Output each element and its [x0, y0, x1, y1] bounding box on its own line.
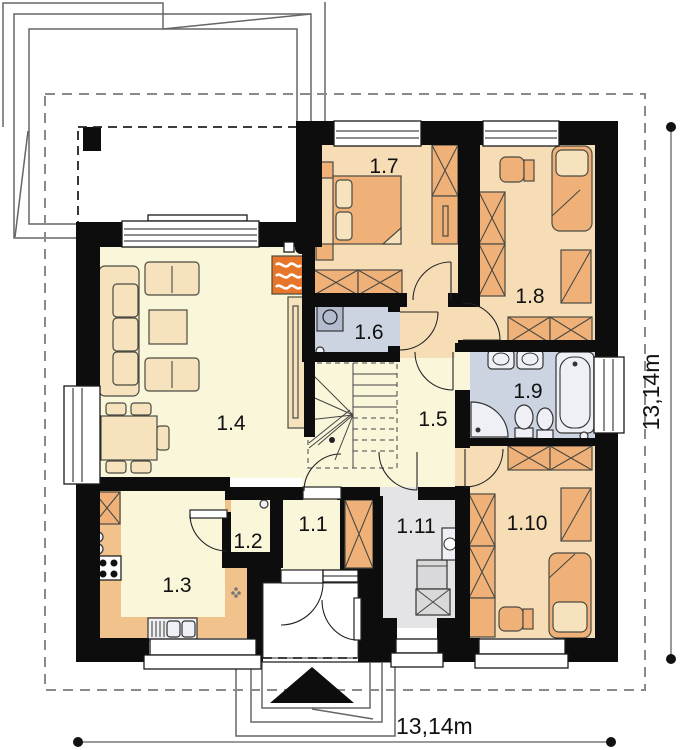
wall-bottom4 [564, 638, 618, 662]
roof-hip-line [163, 14, 311, 29]
wall-boiler-east2 [388, 346, 400, 362]
wall-pantry-north [225, 487, 303, 500]
room-label-1-5: 1.5 [418, 408, 447, 431]
desk [524, 160, 534, 181]
window-laundry [396, 639, 438, 653]
window-kitchen [150, 639, 256, 655]
window-bedroom3 [479, 639, 565, 654]
wall-pantry-south [222, 552, 283, 568]
cabinet [469, 598, 495, 637]
wall-living-hall [302, 243, 315, 362]
room-label-1-9: 1.9 [513, 380, 542, 403]
sofa-cushion [113, 318, 138, 351]
dining-chair [106, 403, 126, 415]
wall-laundry-bed3 [455, 486, 470, 638]
coffee-table [149, 310, 187, 344]
pillow [336, 180, 352, 208]
dimension-label-right: 13,14m [638, 354, 664, 431]
pillow [553, 602, 587, 632]
fireplace-vent [284, 242, 294, 252]
room-label-1-11: 1.11 [396, 515, 435, 538]
floor-plan-drawing: 13,14m 13,14m 1.1 1.2 1.3 1.4 1.5 1.6 1.… [0, 0, 681, 750]
wall-left-lower [76, 484, 100, 662]
bathtub-drain [573, 362, 578, 367]
vestibule-floor [263, 583, 358, 658]
door-leaf-entrance-hall [303, 487, 341, 499]
wall-laundry-south2 [437, 618, 470, 640]
pantry-fixture-circle [260, 500, 268, 508]
dining-chair [131, 461, 151, 473]
wall-bath-bed3 [458, 438, 595, 446]
floor-plan-page: 13,14m 13,14m 1.1 1.2 1.3 1.4 1.5 1.6 1.… [0, 0, 681, 750]
dimension-marker [666, 122, 676, 132]
stove-burner [111, 560, 118, 567]
roof-edge-outer [3, 3, 163, 127]
sink-basin [182, 621, 195, 637]
stair-start-dot [329, 437, 335, 443]
door-leaf-entry [354, 598, 361, 640]
porch-diagonal [312, 709, 373, 719]
bidet-back [537, 430, 553, 439]
pillow [556, 150, 588, 176]
wall-bed1-bed2 [458, 145, 480, 307]
window-bedroom3-sill [475, 654, 568, 668]
wall-bed2-bath [458, 340, 595, 352]
floor-hall-door-gap2 [379, 487, 420, 500]
chimney [83, 127, 101, 151]
stove-burner [100, 571, 107, 578]
wall-vestibule-north [263, 568, 281, 583]
roof-edge-mid [14, 14, 311, 238]
roof-edge-inner [29, 29, 297, 224]
dining-chair [106, 461, 126, 473]
room-label-1-4: 1.4 [216, 412, 246, 435]
wall-wing-top3 [558, 121, 618, 145]
wall-right-lower [595, 433, 618, 662]
wall-left-upper [76, 222, 100, 386]
dining-chair [131, 403, 151, 415]
wall-boiler-south [306, 352, 400, 362]
room-label-1-8: 1.8 [515, 285, 544, 308]
stove-burner [111, 571, 118, 578]
wall-bottom1 [76, 638, 149, 662]
stove-burner [100, 560, 107, 567]
wall-bed1-south-stub [448, 293, 458, 307]
sofa-cushion [113, 284, 138, 317]
shower-head [476, 428, 481, 433]
boiler [317, 304, 343, 331]
wall-living-top-left [100, 222, 123, 247]
sofa-cushion [113, 352, 138, 385]
sink-basin [167, 621, 180, 637]
roof-diagonal-left [15, 131, 28, 237]
dining-table [101, 416, 157, 460]
room-label-1-7: 1.7 [369, 155, 398, 178]
wall-hall-south2 [418, 487, 458, 500]
floor-bed3-door-gap [455, 446, 470, 490]
room-label-1-2: 1.2 [233, 530, 262, 553]
window-laundry-sill [391, 653, 443, 667]
wall-boiler-east1 [388, 295, 400, 312]
door-leaf-vestibule [281, 570, 323, 583]
entrance-arrow [270, 667, 354, 703]
laundry-heater-dial [444, 538, 456, 550]
terrace-glass-door [122, 221, 259, 247]
desk-chair [499, 607, 523, 631]
dining-chair [157, 426, 169, 450]
dimension-marker [73, 737, 83, 747]
wall-laundry-west [373, 496, 383, 628]
washing-machine [417, 560, 447, 589]
desk [523, 609, 533, 629]
wall-laundry-south1 [373, 618, 397, 640]
floor-bath-door-gap [455, 352, 470, 390]
room-label-1-10: 1.10 [507, 512, 548, 535]
toilet-bowl [515, 405, 533, 429]
window-bedroom1 [334, 121, 421, 146]
dimension-marker [666, 654, 676, 664]
wall-stairs-west [304, 362, 315, 437]
dimension-label-bottom: 13,14m [396, 713, 473, 739]
wall-corner-column [296, 121, 322, 247]
room-label-1-6: 1.6 [354, 321, 383, 344]
pillow [336, 212, 352, 240]
kitchen-counter-nook [225, 568, 247, 638]
room-label-1-3: 1.3 [162, 574, 191, 597]
desk-chair [500, 157, 524, 182]
terrace-step-line [148, 215, 247, 221]
bidet-bowl [537, 408, 553, 430]
window-bedroom2 [483, 121, 559, 146]
room-label-1-1: 1.1 [298, 513, 327, 536]
wardrobe-slot [443, 206, 448, 236]
wall-wing-top2 [420, 121, 484, 145]
window-kitchen-sill [144, 655, 261, 669]
roof-outline [3, 2, 325, 238]
dimension-marker [606, 737, 616, 747]
fireplace-flue [295, 242, 307, 254]
tv-cabinet-inner [293, 306, 298, 418]
window-bathroom [594, 357, 624, 433]
vestibule [263, 570, 361, 703]
door-leaf-pantry [190, 510, 227, 518]
wall-right-upper [595, 145, 618, 357]
